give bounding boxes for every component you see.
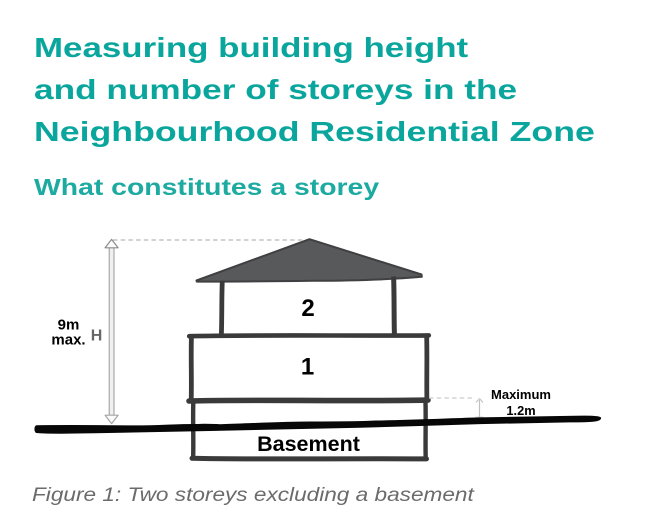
svg-text:max.: max. — [51, 331, 85, 348]
svg-text:1: 1 — [301, 354, 314, 381]
svg-text:2: 2 — [301, 295, 314, 322]
svg-text:H: H — [91, 328, 103, 345]
svg-text:Maximum: Maximum — [491, 387, 551, 402]
svg-text:Basement: Basement — [257, 432, 360, 456]
svg-text:1.2m: 1.2m — [506, 403, 535, 418]
